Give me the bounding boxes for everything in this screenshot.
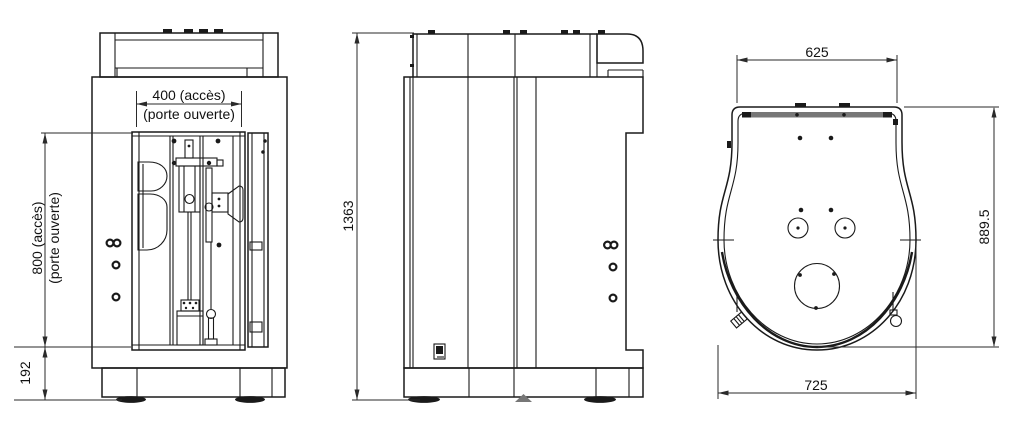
- dim-label-front-height-access-note: (porte ouverte): [46, 158, 63, 318]
- side-body: [404, 77, 643, 368]
- front-door-mechanism: [138, 136, 243, 345]
- dim-label-front-base-height: 192: [17, 343, 33, 403]
- front-side-connectors: [107, 240, 121, 301]
- side-rear-connectors: [604, 242, 617, 302]
- power-switch: [434, 344, 445, 359]
- front-open-door-panel: [248, 133, 268, 347]
- side-view-drawing: [404, 30, 643, 403]
- dim-label-top-width: 625: [787, 44, 847, 61]
- dim-label-front-height-access-value: 800 (accès): [29, 158, 46, 318]
- side-base-feet: [404, 368, 643, 403]
- technical-drawing-page: 400 (accès) (porte ouverte) 800 (accès) …: [0, 0, 1024, 426]
- drawing-canvas: [0, 0, 1024, 426]
- dim-label-front-width-access: 400 (accès): [134, 87, 244, 104]
- dim-label-front-width-access-note: (porte ouverte): [130, 106, 248, 123]
- front-base-feet: [102, 368, 285, 403]
- top-door-edge-bar: [742, 112, 892, 118]
- dim-label-top-overall-width: 725: [786, 377, 846, 394]
- dim-label-side-overall-height: 1363: [340, 181, 356, 251]
- dim-label-front-height-access: 800 (accès) (porte ouverte): [29, 158, 65, 318]
- top-view-drawing: [713, 103, 921, 350]
- top-holes-and-ports: [788, 136, 855, 310]
- front-cap: [100, 29, 278, 77]
- dim-label-top-depth: 889.5: [976, 187, 992, 267]
- side-cap: [410, 30, 643, 77]
